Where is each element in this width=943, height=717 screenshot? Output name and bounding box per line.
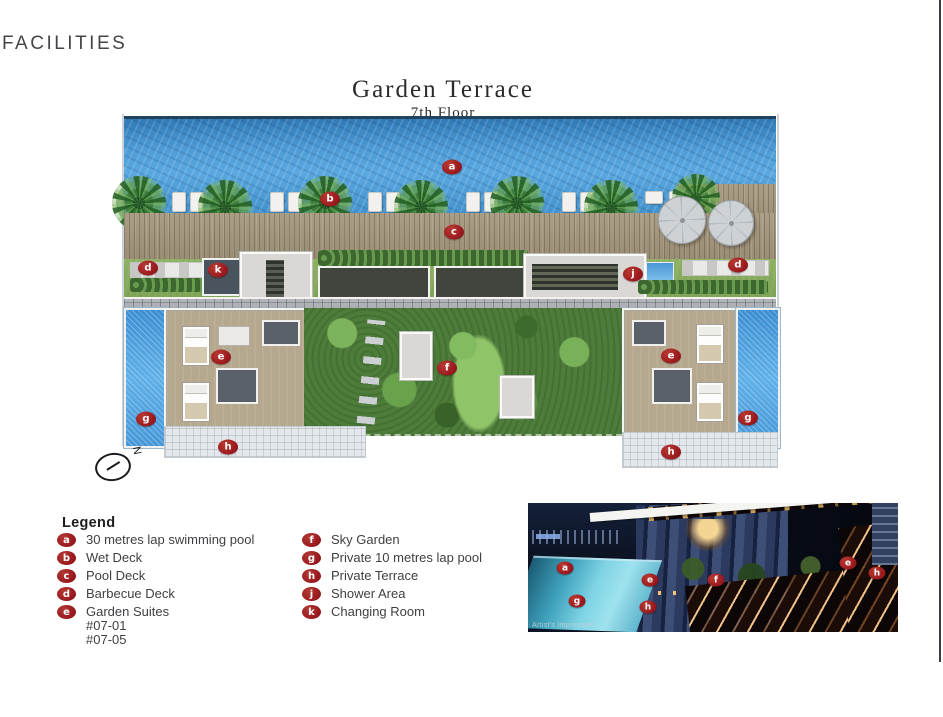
legend-badge-a: a: [57, 533, 76, 547]
legend-label: 30 metres lap swimming pool: [86, 533, 254, 547]
private-pool-right: [736, 308, 780, 448]
legend-badge-c: c: [57, 569, 76, 583]
legend-badge-f: f: [302, 533, 321, 547]
hedge: [638, 280, 768, 294]
vanity: [218, 326, 250, 346]
legend-label: Pool Deck: [86, 569, 145, 583]
jacuzzi: [646, 262, 674, 282]
planter: [318, 266, 430, 300]
legend-label: Garden Suites#07-01#07-05: [86, 605, 169, 647]
legend-badge-j: j: [302, 587, 321, 601]
sun-lounger: [645, 191, 663, 204]
legend-label: Private Terrace: [331, 569, 418, 583]
adjacent-building: [872, 503, 898, 565]
legend-unit-number: #07-05: [86, 633, 169, 647]
sun-lounger: [368, 192, 382, 212]
garden-suite-right: [622, 308, 741, 438]
photo-caption: Artist's Impression: [532, 622, 595, 629]
bed: [696, 324, 724, 364]
legend-label: Private 10 metres lap pool: [331, 551, 482, 565]
umbrella-icon: [658, 196, 706, 244]
legend-badge-k: k: [302, 605, 321, 619]
page-border: [939, 0, 941, 662]
legend-title: Legend: [62, 515, 115, 531]
bed: [182, 382, 210, 422]
arch-glow: [686, 519, 730, 551]
legend-label: Shower Area: [331, 587, 405, 601]
shower-area-structure: [524, 254, 646, 300]
legend-column-left: a30 metres lap swimming poolbWet DeckcPo…: [57, 533, 297, 651]
sun-lounger: [562, 192, 576, 212]
garden-pavilion: [400, 332, 432, 380]
legend-item-a: a30 metres lap swimming pool: [57, 533, 297, 547]
legend-label: Changing Room: [331, 605, 425, 619]
legend-badge-d: d: [57, 587, 76, 601]
legend-item-h: hPrivate Terrace: [302, 569, 542, 583]
legend-badge-h: h: [302, 569, 321, 583]
legend-badge-b: b: [57, 551, 76, 565]
roof-slats: [532, 264, 618, 290]
barbecue-deck-right: [682, 260, 769, 276]
closet: [262, 320, 300, 346]
bed: [182, 326, 210, 366]
legend-item-j: jShower Area: [302, 587, 542, 601]
legend-item-d: dBarbecue Deck: [57, 587, 297, 601]
private-terrace-left: [164, 426, 366, 458]
stepping-stones: [357, 319, 386, 424]
legend-label: Barbecue Deck: [86, 587, 175, 601]
hedge: [318, 250, 528, 266]
legend-badge-g: g: [302, 551, 321, 565]
legend-item-f: fSky Garden: [302, 533, 542, 547]
legend-label: Sky Garden: [331, 533, 400, 547]
garden-pavilion: [500, 376, 534, 418]
floor-plan: [122, 112, 779, 464]
legend-item-b: bWet Deck: [57, 551, 297, 565]
changing-room-area: [202, 258, 244, 296]
planter: [434, 266, 528, 300]
sun-lounger: [172, 192, 186, 212]
sun-lounger: [466, 192, 480, 212]
bathroom: [652, 368, 692, 404]
umbrella-icon: [708, 200, 754, 246]
sky-garden: [304, 308, 622, 436]
plan-title: Garden Terrace: [122, 76, 764, 104]
closet: [632, 320, 666, 346]
sun-lounger: [270, 192, 284, 212]
garden-suite-left: [164, 308, 308, 438]
page-heading: FACILITIES: [2, 33, 127, 55]
bed: [696, 382, 724, 422]
bathroom: [216, 368, 258, 404]
legend-badge-e: e: [57, 605, 76, 619]
lit-sign: [536, 534, 560, 539]
legend-item-g: gPrivate 10 metres lap pool: [302, 551, 542, 565]
private-terrace-right: [622, 432, 778, 468]
legend-label: Wet Deck: [86, 551, 142, 565]
private-pool-left: [124, 308, 168, 448]
legend-item-k: kChanging Room: [302, 605, 542, 619]
legend-item-c: cPool Deck: [57, 569, 297, 583]
legend-column-right: fSky GardengPrivate 10 metres lap poolhP…: [302, 533, 542, 623]
legend-unit-number: #07-01: [86, 619, 169, 633]
legend-item-e: eGarden Suites#07-01#07-05: [57, 605, 297, 647]
building-photo: Artist's Impression: [528, 503, 898, 632]
